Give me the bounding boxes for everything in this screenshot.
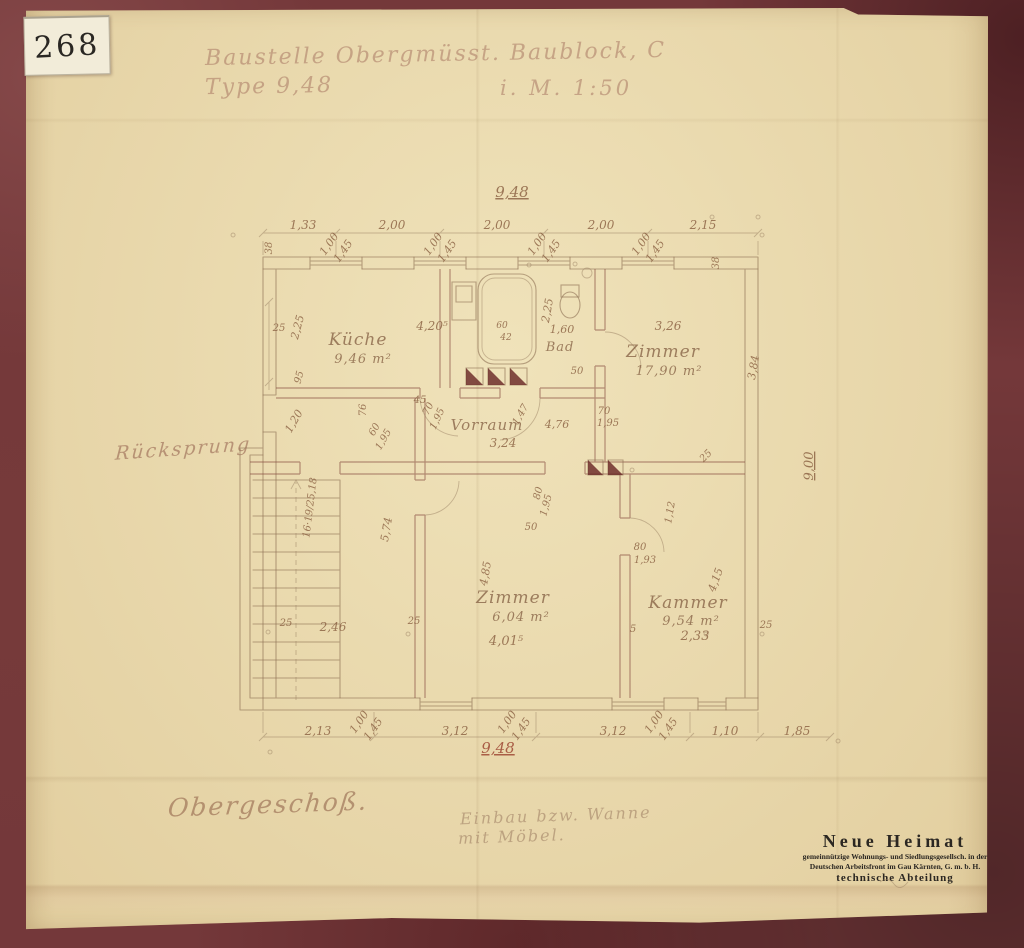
dimension-label: 25 xyxy=(407,616,421,627)
dimension-label: 25 xyxy=(279,618,293,629)
dimension-label: 50 xyxy=(571,366,584,377)
dimension-label: 1,10 xyxy=(712,724,739,738)
dimension-label: 5 xyxy=(630,624,636,635)
dimension-label: 25 xyxy=(272,323,286,334)
room-label: 9,54 m² xyxy=(662,614,720,629)
dimension-label: 2,25 xyxy=(539,297,556,324)
stair-treads xyxy=(253,480,340,698)
dimension-label: 1,85 xyxy=(784,724,811,738)
dimension-label: 3,12 xyxy=(442,724,469,738)
dimension-lines xyxy=(231,215,908,888)
dimension-label: 2,15 xyxy=(689,218,717,232)
dimension-label: 25 xyxy=(697,448,714,465)
floor-plan-drawing: 9,481,332,002,002,002,151,001,451,001,45… xyxy=(0,0,1024,948)
dimension-label: 4,76 xyxy=(544,418,570,431)
dimension-label: 50 xyxy=(525,522,538,533)
dimension-label: 9,48 xyxy=(495,183,528,201)
dimension-label: 3,84 xyxy=(745,354,762,380)
window-symbols-bottom xyxy=(420,698,726,710)
room-label: 17,90 m² xyxy=(636,364,703,379)
dimension-label: 25 xyxy=(759,620,773,631)
room-label: Kammer xyxy=(647,593,727,613)
dimension-label: 2,00 xyxy=(483,218,511,232)
room-label: 6,04 m² xyxy=(492,610,550,625)
dimension-label: 95 xyxy=(293,370,307,385)
dimension-label: 1,47 xyxy=(511,402,532,427)
dimension-label: 5,74 xyxy=(378,516,395,542)
dimension-label: 2,00 xyxy=(587,218,615,232)
room-label: Zimmer xyxy=(625,342,700,362)
window-symbols-top xyxy=(310,257,674,269)
dimension-label: 2,00 xyxy=(378,218,406,232)
room-label: Zimmer xyxy=(475,588,550,608)
dimension-label: 1,20 xyxy=(282,407,306,435)
staircase xyxy=(253,480,340,700)
dimension-label: 16·19/25,18 xyxy=(301,477,319,539)
dimension-label: 2,46 xyxy=(319,620,347,634)
dimension-label: 70 xyxy=(598,406,611,417)
signature-mark xyxy=(880,879,908,887)
scanned-floor-plan-sheet: 268 Baustelle Obergmüsst. Baublock, C Ty… xyxy=(0,0,1024,948)
dimension-label: 2,13 xyxy=(304,724,332,738)
dimension-label: 76 xyxy=(358,403,369,416)
dimension-label: 80 xyxy=(634,542,647,553)
dimension-label: 1,33 xyxy=(290,218,317,232)
room-label: 9,46 m² xyxy=(334,352,392,367)
toilet xyxy=(560,292,580,318)
dimension-label: 2,33 xyxy=(680,629,710,644)
dimension-label: 9,48 xyxy=(481,739,514,757)
dimension-label: 38 xyxy=(711,257,722,270)
room-label: Küche xyxy=(328,330,388,350)
dimension-label: 4,15 xyxy=(705,566,726,594)
dim-line-left xyxy=(265,298,273,390)
dimension-label: 4,20⁵ xyxy=(415,319,448,333)
dimension-label: 4,85 xyxy=(477,560,494,587)
dimension-label: 1,93 xyxy=(634,555,656,566)
dimension-label: 3,12 xyxy=(600,724,627,738)
dim-line-bottom xyxy=(259,712,834,741)
room-label: Bad xyxy=(545,340,575,355)
dimension-label: 3,24 xyxy=(490,436,517,450)
bathtub xyxy=(478,274,536,364)
bathtub-inner xyxy=(482,278,532,360)
dimension-label: 9,00 xyxy=(802,452,817,481)
dimension-label: 38 xyxy=(264,242,275,255)
dimension-label: 1,95 xyxy=(597,418,619,429)
dimension-label: 42 xyxy=(499,333,512,343)
dimension-label: 1,12 xyxy=(663,501,678,525)
dimension-label: 60 xyxy=(496,321,508,331)
boiler xyxy=(452,282,476,320)
dimension-label: 4,01⁵ xyxy=(488,634,524,649)
dimension-label: 1,60 xyxy=(550,323,575,336)
dimension-label: 3,26 xyxy=(655,319,682,333)
dimension-label: 2,25 xyxy=(288,314,307,342)
door-swing-arcs xyxy=(420,332,664,552)
stair-arrow xyxy=(291,480,301,489)
